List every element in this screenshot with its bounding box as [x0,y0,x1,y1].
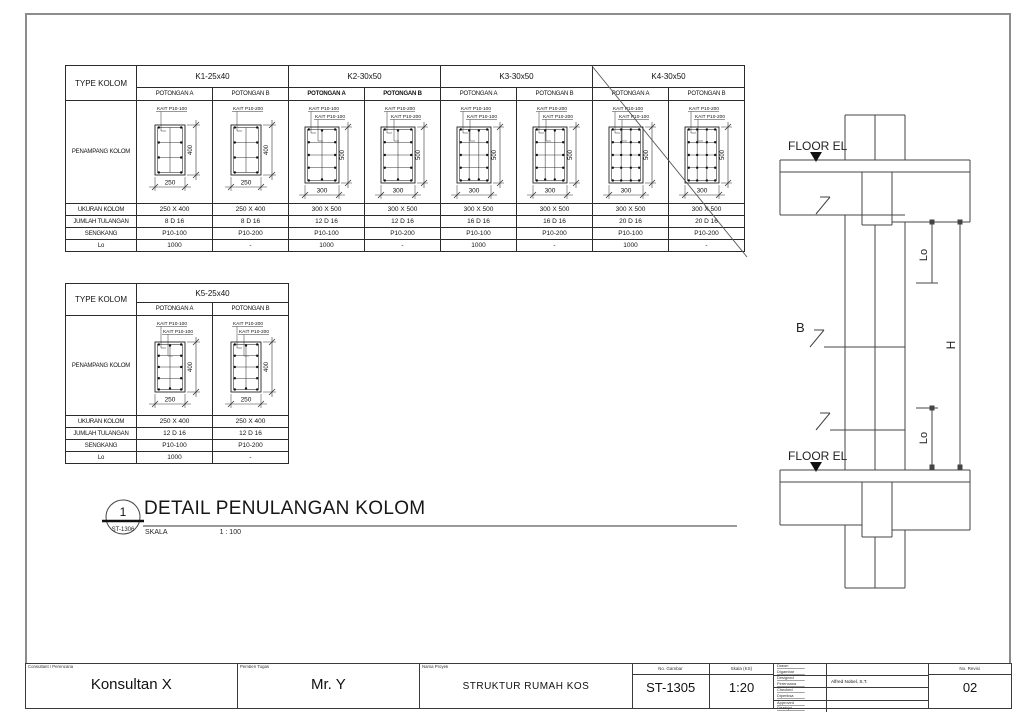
row-label: SENGKANG [66,228,137,240]
client-label: Pemberi Tugas [240,665,269,669]
revision-value: 02 [929,680,1011,695]
title-block-client: Pemberi Tugas Mr. Y [238,664,421,708]
schedule-value: 300 X 500 [593,204,669,216]
schedule-value: 8 D 16 [213,216,289,228]
svg-text:KAIT P10-200: KAIT P10-200 [543,114,573,120]
svg-text:500: 500 [720,149,726,160]
signature-row: ApprovedDisetujui [774,701,928,712]
svg-text:KAIT P10-100: KAIT P10-100 [613,106,643,112]
svg-text:300: 300 [469,187,480,194]
type-kolom-header: TYPE KOLOM [66,284,137,316]
svg-text:250: 250 [165,396,176,403]
column-type-name: K3-30x50 [441,66,593,88]
signature-row: DesignedPerencana Alfred Nobel, S.T. [774,676,928,688]
svg-text:KAIT P10-100: KAIT P10-100 [619,114,649,120]
schedule-value: 12 D 16 [365,216,441,228]
svg-text:500: 500 [568,149,574,160]
column-elevation-drawing: FLOOR EL FLOOR EL Lo Lo H B [770,40,1000,620]
penampang-kolom-label: PENAMPANG KOLOM [66,316,137,416]
scale-ks-label: Skala (KS) [731,665,753,673]
svg-text:300: 300 [545,187,556,194]
row-label: Lo [66,452,137,464]
schedule-value: 12 D 16 [137,428,213,440]
penampang-cell: KAIT P10-100400250 [137,101,213,204]
schedule-value: P10-100 [441,228,517,240]
svg-text:KAIT P10-100: KAIT P10-100 [157,106,187,112]
schedule-value: P10-100 [137,440,213,452]
lo-dimension-label-top: Lo [918,249,930,261]
signature-name [827,664,928,675]
schedule-value: 300 X 500 [669,204,745,216]
svg-text:KAIT P10-100: KAIT P10-100 [467,114,497,120]
svg-text:KAIT P10-200: KAIT P10-200 [385,106,415,112]
potongan-header: POTONGAN A [137,303,213,316]
detail-title-text: DETAIL PENULANGAN KOLOM [144,498,425,520]
column-cross-section: KAIT P10-200400250 [213,103,288,202]
signature-role-label: DesignedPerencana [774,676,827,687]
svg-text:250: 250 [241,396,252,403]
svg-text:KAIT P10-200: KAIT P10-200 [239,329,269,335]
column-cross-section: KAIT P10-200KAIT P10-200500300 [669,103,744,202]
svg-text:KAIT P10-200: KAIT P10-200 [695,114,725,120]
svg-text:KAIT P10-200: KAIT P10-200 [689,106,719,112]
svg-text:KAIT P10-100: KAIT P10-100 [157,321,187,327]
svg-text:KAIT P10-200: KAIT P10-200 [233,106,263,112]
row-label: SENGKANG [66,440,137,452]
svg-text:KAIT P10-200: KAIT P10-200 [391,114,421,120]
penampang-cell: KAIT P10-100KAIT P10-100500300 [441,101,517,204]
potongan-header: POTONGAN A [441,88,517,101]
svg-text:300: 300 [317,187,328,194]
potongan-header: POTONGAN A [137,88,213,101]
consultant-value: Konsultan X [26,676,237,693]
column-cross-section: KAIT P10-100KAIT P10-100400250 [137,318,212,414]
scale-value: 1 : 100 [220,529,241,536]
svg-text:250: 250 [165,179,176,186]
title-block-signatures: DrawnDigambar DesignedPerencana Alfred N… [774,664,929,708]
schedule-value: 20 D 16 [593,216,669,228]
column-cross-section: KAIT P10-100KAIT P10-100500300 [289,103,364,202]
column-type-name: K5-25x40 [137,284,289,303]
h-dimension-label: H [944,341,958,350]
potongan-header: POTONGAN A [289,88,365,101]
signature-role-label: CheckedDiperiksa [774,688,827,699]
title-block-project: Nama Proyek STRUKTUR RUMAH KOS [420,664,633,708]
potongan-header: POTONGAN B [365,88,441,101]
section-b-label: B [796,320,805,335]
potongan-header: POTONGAN B [213,303,289,316]
svg-text:KAIT P10-100: KAIT P10-100 [315,114,345,120]
consultant-label: Consultant / Perencana [28,665,73,669]
svg-text:400: 400 [188,361,194,372]
svg-text:250: 250 [241,179,252,186]
potongan-header: POTONGAN A [593,88,669,101]
penampang-cell: KAIT P10-200KAIT P10-200400250 [213,316,289,416]
floor-el-label-top: FLOOR EL [788,139,848,153]
schedule-value: 1000 [289,240,365,252]
drawing-number-label: No. Gambar [658,665,683,673]
title-block-revision: No. Revisi 02 [929,664,1011,708]
row-label: JUMLAH TULANGAN [66,428,137,440]
schedule-value: 250 X 400 [213,416,289,428]
title-block-consultant: Consultant / Perencana Konsultan X [26,664,238,708]
schedule-value: 300 X 500 [517,204,593,216]
svg-text:500: 500 [644,149,650,160]
svg-text:500: 500 [340,149,346,160]
project-label: Nama Proyek [422,665,448,669]
schedule-value: P10-200 [517,228,593,240]
column-cross-section: KAIT P10-100KAIT P10-100500300 [441,103,516,202]
schedule-value: 16 D 16 [517,216,593,228]
potongan-header: POTONGAN B [517,88,593,101]
svg-text:400: 400 [264,144,270,155]
signature-name [827,688,928,699]
scale-label: SKALA [145,529,168,536]
drawing-number-value: ST-1305 [633,680,709,695]
lo-dimension-label-bottom: Lo [918,432,930,444]
column-type-name: K1-25x40 [137,66,289,88]
title-block: Consultant / Perencana Konsultan X Pembe… [25,663,1012,709]
schedule-value: 8 D 16 [137,216,213,228]
signature-name [827,701,928,712]
detail-ref: ST-1306 [112,527,135,533]
schedule-value: P10-100 [137,228,213,240]
potongan-header: POTONGAN B [669,88,745,101]
drawing-sheet: { "detail_title": { "number": "1", "ref"… [0,0,1024,724]
svg-text:KAIT P10-100: KAIT P10-100 [163,329,193,335]
svg-text:300: 300 [621,187,632,194]
signature-row: DrawnDigambar [774,664,928,676]
penampang-cell: KAIT P10-200400250 [213,101,289,204]
schedule-value: 1000 [137,240,213,252]
column-cross-section: KAIT P10-200KAIT P10-200400250 [213,318,288,414]
project-value: STRUKTUR RUMAH KOS [420,681,632,692]
column-cross-section: KAIT P10-200KAIT P10-200500300 [517,103,592,202]
schedule-value: - [213,240,289,252]
column-type-name: K4-30x50 [593,66,745,88]
column-type-name: K2-30x50 [289,66,441,88]
penampang-kolom-label: PENAMPANG KOLOM [66,101,137,204]
detail-number: 1 [120,505,127,519]
column-cross-section: KAIT P10-100KAIT P10-100500300 [593,103,668,202]
svg-text:500: 500 [492,149,498,160]
floor-el-label-bottom: FLOOR EL [788,449,848,463]
penampang-cell: KAIT P10-200KAIT P10-200500300 [669,101,745,204]
schedule-value: 250 X 400 [137,416,213,428]
penampang-cell: KAIT P10-100KAIT P10-100400250 [137,316,213,416]
row-label: UKURAN KOLOM [66,204,137,216]
schedule-value: 300 X 500 [441,204,517,216]
title-block-drawing-number: No. Gambar ST-1305 [633,664,710,708]
svg-text:KAIT P10-100: KAIT P10-100 [309,106,339,112]
penampang-cell: KAIT P10-100KAIT P10-100500300 [289,101,365,204]
schedule-value: - [517,240,593,252]
revision-label: No. Revisi [960,665,981,673]
scale-ks-value: 1:20 [710,680,774,695]
schedule-value: P10-200 [365,228,441,240]
schedule-value: - [365,240,441,252]
type-kolom-header: TYPE KOLOM [66,66,137,101]
schedule-value: 16 D 16 [441,216,517,228]
schedule-value: P10-100 [593,228,669,240]
schedule-value: P10-100 [289,228,365,240]
svg-text:KAIT P10-200: KAIT P10-200 [537,106,567,112]
schedule-value: - [669,240,745,252]
schedule-value: 250 X 400 [137,204,213,216]
svg-text:500: 500 [416,149,422,160]
schedule-value: 12 D 16 [289,216,365,228]
detail-title-underline [143,525,737,527]
svg-text:400: 400 [188,144,194,155]
schedule-value: 1000 [593,240,669,252]
schedule-value: P10-200 [213,228,289,240]
penampang-cell: KAIT P10-200KAIT P10-200500300 [517,101,593,204]
schedule-value: P10-200 [213,440,289,452]
schedule-value: 12 D 16 [213,428,289,440]
column-cross-section: KAIT P10-200KAIT P10-200500300 [365,103,440,202]
penampang-cell: KAIT P10-200KAIT P10-200500300 [365,101,441,204]
row-label: UKURAN KOLOM [66,416,137,428]
penampang-cell: KAIT P10-100KAIT P10-100500300 [593,101,669,204]
signature-name: Alfred Nobel, S.T. [827,676,928,687]
schedule-value: 1000 [441,240,517,252]
column-cross-section: KAIT P10-100400250 [137,103,212,202]
schedule-value: 300 X 500 [365,204,441,216]
svg-text:400: 400 [264,361,270,372]
signature-role-label: DrawnDigambar [774,664,827,675]
schedule-value: 300 X 500 [289,204,365,216]
signature-role-label: ApprovedDisetujui [774,701,827,712]
svg-text:300: 300 [393,187,404,194]
row-label: JUMLAH TULANGAN [66,216,137,228]
schedule-value: P10-200 [669,228,745,240]
schedule-value: 1000 [137,452,213,464]
schedule-value: 250 X 400 [213,204,289,216]
row-label: Lo [66,240,137,252]
potongan-header: POTONGAN B [213,88,289,101]
schedule-value: 20 D 16 [669,216,745,228]
svg-text:KAIT P10-200: KAIT P10-200 [233,321,263,327]
schedule-value: - [213,452,289,464]
client-value: Mr. Y [238,676,420,693]
detail-title: 1 ST-1306 DETAIL PENULANGAN KOLOM SKALA1… [100,496,760,548]
svg-text:KAIT P10-100: KAIT P10-100 [461,106,491,112]
signature-row: CheckedDiperiksa [774,688,928,700]
detail-scale: SKALA1 : 100 [145,529,241,536]
title-block-scale: Skala (KS) 1:20 [710,664,775,708]
svg-text:300: 300 [697,187,708,194]
